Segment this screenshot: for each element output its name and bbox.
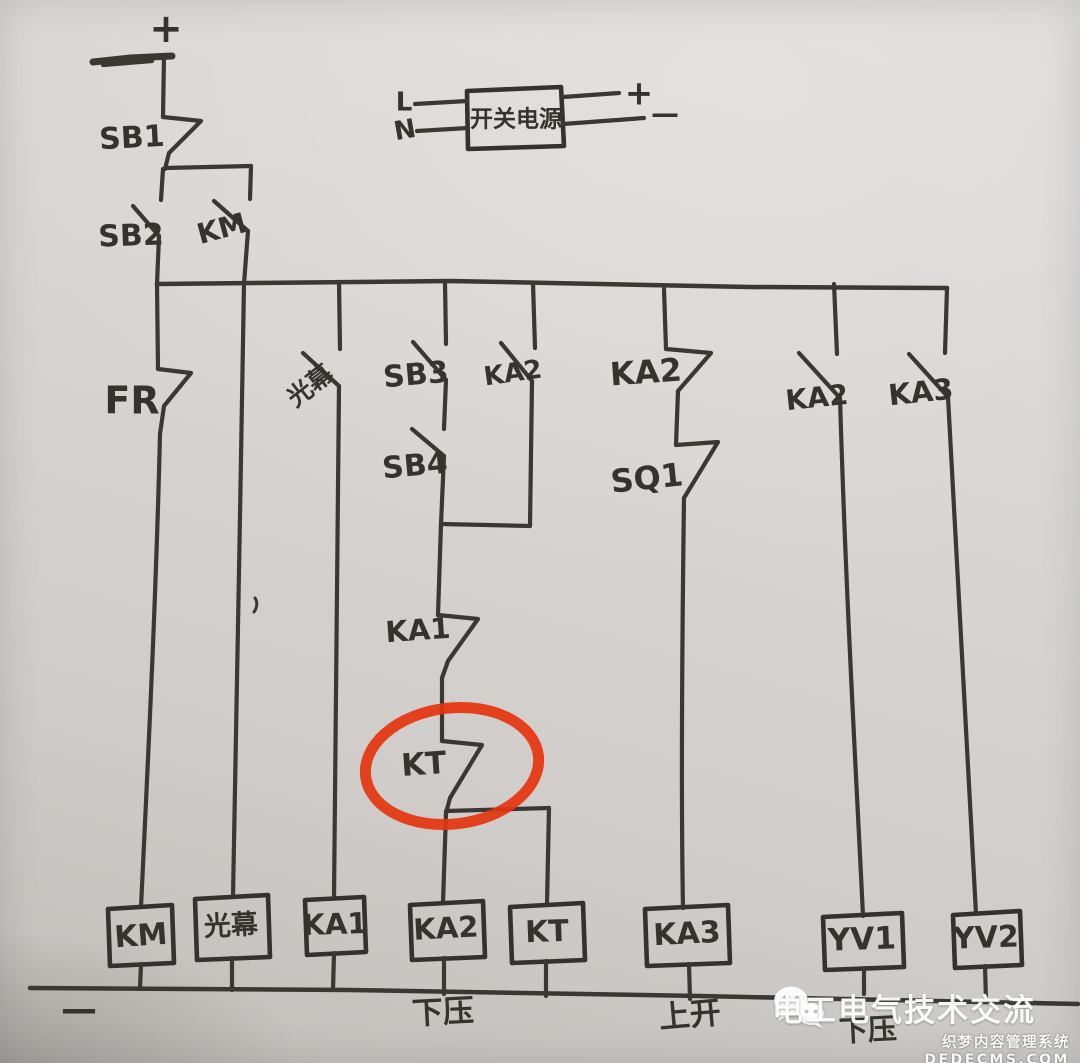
top-plus-terminal: + <box>149 6 183 52</box>
sb1-contact <box>163 117 201 169</box>
ka2-coil-label: KA2 <box>412 909 479 946</box>
ka2-seal-label: KA2 <box>482 355 544 393</box>
power-supply-label: 开关电源 <box>470 106 562 133</box>
watermark-brand-text: 电工电气技术交流 <box>772 985 1036 1030</box>
fr-contact <box>158 369 191 434</box>
kt-contact-label: KT <box>400 745 448 784</box>
caption-up-open: 上开 <box>657 995 722 1036</box>
yv1-coil-label: YV1 <box>826 920 896 958</box>
neutral-terminal-label: N <box>392 114 419 147</box>
power-plus-label: + <box>625 74 654 114</box>
light-curtain-coil-label: 光幕 <box>202 909 260 943</box>
kt-nc-contact <box>442 741 482 813</box>
bottom-minus-terminal: — <box>61 989 97 1030</box>
km-coil-label: KM <box>113 917 168 956</box>
ka2-no-label: KA2 <box>784 378 850 417</box>
ka1-coil-label: KA1 <box>302 906 368 942</box>
watermark: 电工电气技术交流 织梦内容管理系统 DEDECMS.COM <box>772 985 1080 1063</box>
sb4-label: SB4 <box>381 446 449 487</box>
rung-light-curtain-coil <box>195 284 270 990</box>
sb1-label: SB1 <box>98 119 165 157</box>
power-minus-label: — <box>651 97 679 130</box>
sq1-label: SQ1 <box>609 455 685 500</box>
top-bus <box>157 281 947 288</box>
light-curtain-contact-label: 光幕 <box>281 358 340 413</box>
yv2-coil-label: YV2 <box>951 919 1019 956</box>
photographed-circuit-diagram: + SB1 SB2 KM L N 开关电源 + — FR KM 光幕 <box>0 0 1080 1063</box>
km-contact-label: KM <box>193 206 249 251</box>
watermark-cms-name: 织梦内容管理系统 <box>772 1031 1070 1052</box>
line-terminal-label: L <box>396 88 413 118</box>
watermark-cms-domain: DEDECMS.COM <box>772 1052 1070 1063</box>
ka3-coil-label: KA3 <box>652 915 721 953</box>
kt-coil-label: KT <box>525 914 570 951</box>
ka2-nc-label: KA2 <box>609 351 683 394</box>
caption-down-press: 下压 <box>411 993 475 1032</box>
rung-ka3 <box>645 289 730 999</box>
ka3-no-label: KA3 <box>887 372 955 413</box>
fr-label: FR <box>104 379 159 423</box>
red-highlight-circle <box>359 698 546 834</box>
ladder-diagram-drawing: + SB1 SB2 KM L N 开关电源 + — FR KM 光幕 <box>0 0 1080 1063</box>
sb3-label: SB3 <box>382 355 450 396</box>
ka1-contact-label: KA1 <box>384 611 451 649</box>
sb2-label: SB2 <box>98 217 165 254</box>
